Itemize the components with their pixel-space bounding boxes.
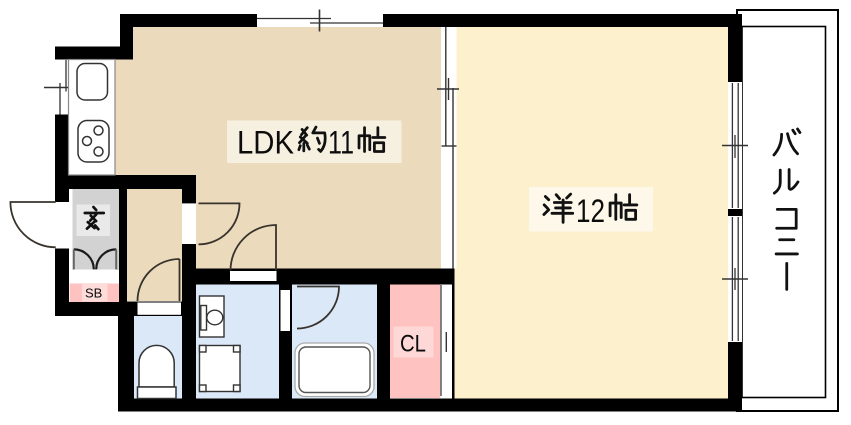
svg-text:LDK: LDK — [237, 125, 294, 161]
svg-text:CL: CL — [400, 331, 426, 358]
svg-text:SB: SB — [85, 286, 102, 301]
svg-text:12: 12 — [576, 193, 605, 229]
svg-text:11: 11 — [328, 125, 354, 161]
